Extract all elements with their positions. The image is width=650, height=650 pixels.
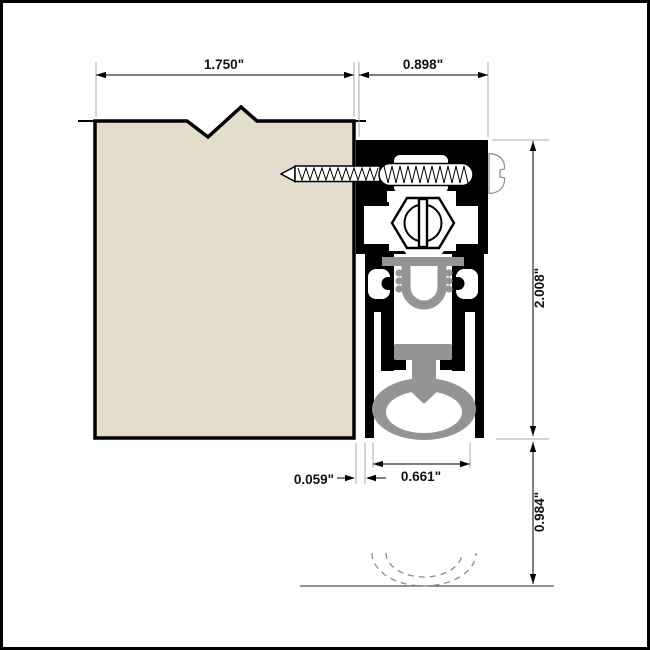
seal-insert-bar [394,344,452,360]
dim-label-door-thickness: 1.750" [204,57,244,72]
dim-seal-width: 0.661" [373,461,470,484]
dim-housing-height: 2.008" [530,141,547,436]
spring-coil-right [445,269,452,276]
seal-insert-stem [412,358,436,390]
dim-label-housing-width: 0.898" [403,57,443,72]
retainer-hook-right [452,277,465,290]
screw-head-side-view [489,154,505,194]
arrowhead-left [359,72,369,78]
spring-channel-u [406,263,442,305]
spring-coil-right [445,285,452,292]
spring-carrier-flange [382,257,464,266]
arrowhead-top [530,442,536,452]
spring-coil-left [395,269,402,276]
door-section [78,107,366,438]
floor-and-phantom [300,553,554,586]
spring-coil-left [395,277,402,284]
dim-label-drop-distance: 0.984" [532,492,547,532]
arrowhead-top [530,141,536,151]
dim-label-housing-height: 2.008" [532,268,547,308]
spring-coil-right [445,277,452,284]
dropped-seal-outer-arc [372,553,476,586]
dim-label-clearance-gap: 0.059" [294,472,334,487]
dropped-seal-inner-arc [386,553,462,577]
door-slab [95,107,354,438]
arrowhead-pointing-right [345,475,355,481]
dim-clearance-gap: 0.059" [294,472,386,487]
spring-coil-left [395,285,402,292]
dim-label-seal-width: 0.661" [401,469,441,484]
dim-housing-width: 0.898" [359,57,488,78]
arrowhead-right [344,72,354,78]
arrowhead-left [96,72,106,78]
door-bottom-seal-diagram: 1.750" 0.898" 2.008" 0.984" 0.661" 0.059… [3,3,647,647]
nut-cavity-arm-left [364,206,389,244]
arrowhead-bottom [530,426,536,436]
nut-cavity-arm-right [455,206,478,244]
retainer-hook-left [382,277,394,290]
nut-slot [419,199,427,247]
arrowhead-left [373,461,383,467]
arrowhead-bottom [530,574,536,584]
dim-door-thickness: 1.750" [96,57,354,78]
arrowhead-right [460,461,470,467]
arrowhead-right [478,72,488,78]
drawing-page: 1.750" 0.898" 2.008" 0.984" 0.661" 0.059… [0,0,650,650]
dim-drop-distance: 0.984" [530,442,547,584]
adjustment-nut [392,198,454,248]
